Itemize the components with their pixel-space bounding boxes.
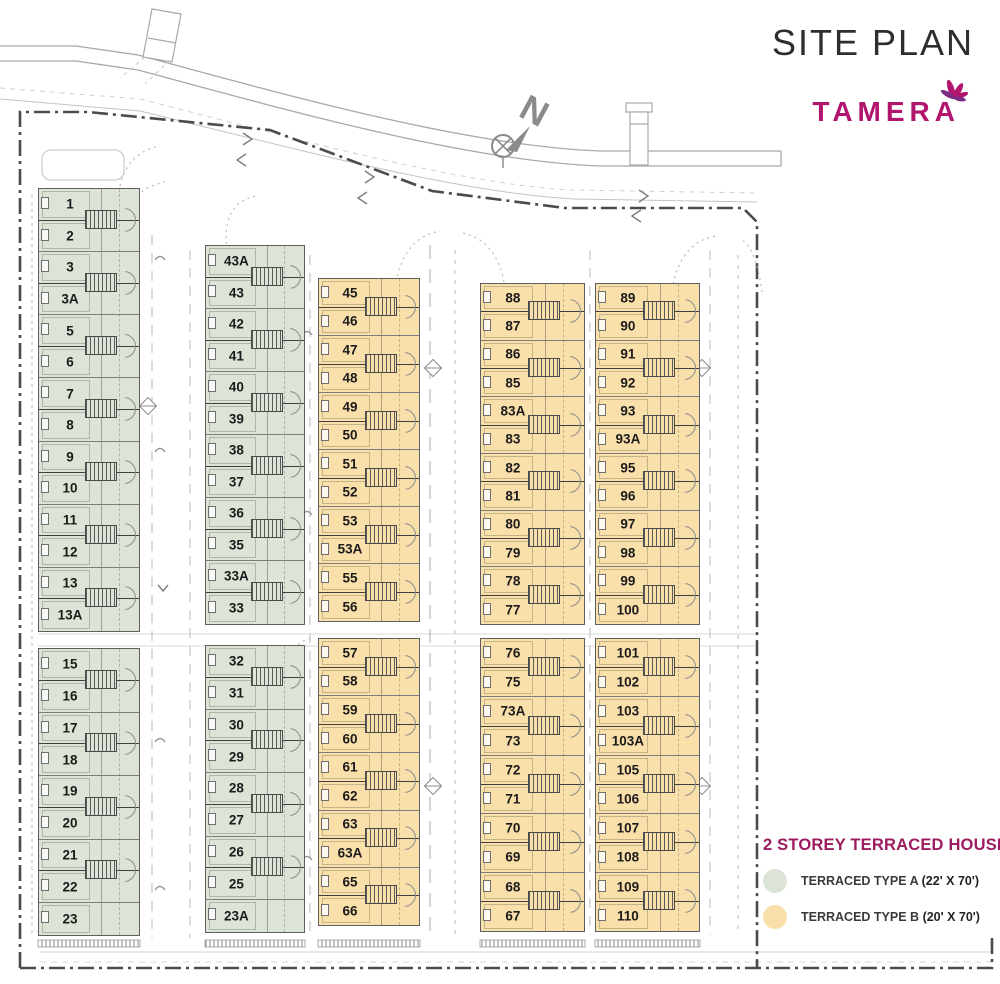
utility-meter-icon bbox=[208, 845, 216, 857]
utility-meter-icon bbox=[208, 686, 216, 698]
utility-meter-icon bbox=[321, 846, 329, 858]
utility-meter-icon bbox=[598, 851, 606, 863]
utility-meter-icon bbox=[41, 260, 49, 272]
utility-meter-icon bbox=[41, 576, 49, 588]
utility-meter-icon bbox=[321, 732, 329, 744]
unit-outline bbox=[42, 905, 90, 933]
type-a-swatch bbox=[763, 869, 787, 893]
lot-88: 88 bbox=[481, 284, 584, 312]
lot-7: 7 bbox=[39, 378, 139, 410]
unit-outline bbox=[484, 343, 533, 366]
utility-meter-icon bbox=[321, 600, 329, 612]
legend-item-label: TERRACED TYPE B bbox=[801, 910, 919, 924]
lot-block-col2-bottom: 323130292827262523A bbox=[205, 645, 305, 933]
unit-outline bbox=[599, 816, 648, 840]
lot-block-col3-top: 45464748495051525353A5556 bbox=[318, 278, 420, 622]
lot-101: 101 bbox=[596, 639, 699, 668]
site-plan-canvas: N 1233A567891011121313A15161718192021222… bbox=[0, 0, 1000, 984]
north-label: N bbox=[513, 86, 555, 134]
unit-outline bbox=[599, 699, 648, 723]
utility-meter-icon bbox=[483, 705, 491, 717]
staircase-icon bbox=[365, 525, 397, 544]
utility-meter-icon bbox=[598, 603, 606, 615]
utility-meter-icon bbox=[483, 433, 491, 445]
utility-meter-icon bbox=[41, 323, 49, 335]
lot-80: 80 bbox=[481, 511, 584, 539]
unit-outline bbox=[209, 437, 256, 464]
unit-outline bbox=[42, 538, 90, 565]
unit-outline bbox=[209, 648, 256, 675]
legend-item-label: TERRACED TYPE A bbox=[801, 874, 918, 888]
lot-33A: 33A bbox=[206, 561, 304, 593]
unit-outline bbox=[209, 870, 256, 897]
staircase-icon bbox=[365, 657, 397, 676]
unit-outline bbox=[599, 428, 648, 451]
unit-outline bbox=[42, 507, 90, 534]
unit-outline bbox=[42, 873, 90, 900]
utility-meter-icon bbox=[41, 229, 49, 241]
utility-meter-icon bbox=[208, 254, 216, 266]
unit-outline bbox=[209, 743, 256, 770]
lot-13: 13 bbox=[39, 568, 139, 600]
curb-outline bbox=[42, 150, 124, 180]
utility-meter-icon bbox=[41, 450, 49, 462]
staircase-icon bbox=[365, 771, 397, 790]
lot-86: 86 bbox=[481, 341, 584, 369]
unit-outline bbox=[484, 729, 533, 753]
unit-outline bbox=[322, 281, 370, 305]
unit-outline bbox=[484, 399, 533, 422]
staircase-icon bbox=[85, 336, 117, 355]
unit-outline bbox=[322, 670, 370, 694]
unit-outline bbox=[322, 813, 370, 837]
utility-meter-icon bbox=[208, 876, 216, 888]
staircase-icon bbox=[251, 730, 283, 749]
lot-105: 105 bbox=[596, 756, 699, 785]
type-b-swatch bbox=[763, 905, 787, 929]
utility-meter-icon bbox=[41, 752, 49, 764]
staircase-icon bbox=[85, 860, 117, 879]
unit-outline bbox=[484, 569, 533, 592]
lot-70: 70 bbox=[481, 814, 584, 843]
utility-meter-icon bbox=[598, 546, 606, 558]
staircase-icon bbox=[365, 297, 397, 316]
utility-meter-icon bbox=[483, 822, 491, 834]
utility-meter-icon bbox=[41, 292, 49, 304]
utility-meter-icon bbox=[321, 543, 329, 555]
staircase-icon bbox=[365, 714, 397, 733]
flower-icon bbox=[934, 74, 974, 114]
utility-meter-icon bbox=[598, 404, 606, 416]
unit-outline bbox=[209, 406, 256, 433]
staircase-icon bbox=[85, 273, 117, 292]
unit-outline bbox=[484, 904, 533, 929]
utility-meter-icon bbox=[483, 348, 491, 360]
utility-meter-icon bbox=[41, 608, 49, 620]
lot-23: 23 bbox=[39, 903, 139, 935]
unit-outline bbox=[599, 641, 648, 665]
unit-outline bbox=[42, 842, 90, 869]
utility-meter-icon bbox=[483, 646, 491, 658]
unit-outline bbox=[42, 746, 90, 773]
unit-outline bbox=[209, 500, 256, 527]
utility-meter-icon bbox=[483, 792, 491, 804]
unit-outline bbox=[209, 374, 256, 401]
utility-meter-icon bbox=[598, 433, 606, 445]
unit-outline bbox=[322, 898, 370, 923]
lot-47: 47 bbox=[319, 336, 419, 365]
unit-outline bbox=[599, 286, 648, 309]
utility-meter-icon bbox=[321, 904, 329, 916]
lot-83A: 83A bbox=[481, 397, 584, 425]
staircase-icon bbox=[528, 415, 560, 434]
unit-outline bbox=[209, 680, 256, 707]
unit-outline bbox=[599, 758, 648, 782]
unit-outline bbox=[484, 845, 533, 869]
lot-107: 107 bbox=[596, 814, 699, 843]
staircase-icon bbox=[251, 857, 283, 876]
staircase-icon bbox=[528, 832, 560, 851]
lot-43A: 43A bbox=[206, 246, 304, 278]
lot-55: 55 bbox=[319, 564, 419, 593]
lot-97: 97 bbox=[596, 511, 699, 539]
brand-logo: TAMERA bbox=[812, 96, 960, 128]
utility-meter-icon bbox=[321, 486, 329, 498]
utility-meter-icon bbox=[483, 404, 491, 416]
utility-meter-icon bbox=[598, 734, 606, 746]
lot-40: 40 bbox=[206, 372, 304, 404]
staircase-icon bbox=[85, 588, 117, 607]
unit-outline bbox=[42, 191, 90, 218]
utility-meter-icon bbox=[598, 676, 606, 688]
lot-15: 15 bbox=[39, 649, 139, 681]
utility-meter-icon bbox=[321, 571, 329, 583]
lot-21: 21 bbox=[39, 840, 139, 872]
staircase-icon bbox=[365, 582, 397, 601]
unit-outline bbox=[599, 314, 648, 337]
utility-meter-icon bbox=[483, 909, 491, 921]
utility-meter-icon bbox=[41, 657, 49, 669]
unit-outline bbox=[599, 569, 648, 592]
lot-49: 49 bbox=[319, 393, 419, 422]
unit-outline bbox=[599, 371, 648, 394]
unit-outline bbox=[42, 683, 90, 710]
utility-meter-icon bbox=[321, 400, 329, 412]
unit-outline bbox=[42, 317, 90, 344]
utility-meter-icon bbox=[208, 506, 216, 518]
staircase-icon bbox=[643, 415, 675, 434]
lot-38: 38 bbox=[206, 435, 304, 467]
lot-block-col2-top: 43A43424140393837363533A33 bbox=[205, 245, 305, 625]
utility-meter-icon bbox=[321, 514, 329, 526]
unit-outline bbox=[322, 698, 370, 722]
lot-32: 32 bbox=[206, 646, 304, 678]
unit-outline bbox=[322, 509, 370, 533]
unit-outline bbox=[42, 223, 90, 250]
utility-meter-icon bbox=[598, 909, 606, 921]
staircase-icon bbox=[643, 716, 675, 735]
page-title: SITE PLAN bbox=[772, 22, 974, 64]
utility-meter-icon bbox=[598, 646, 606, 658]
unit-outline bbox=[599, 729, 648, 753]
unit-outline bbox=[322, 395, 370, 419]
utility-meter-icon bbox=[598, 574, 606, 586]
staircase-icon bbox=[85, 733, 117, 752]
lot-block-col1-bottom: 151617181920212223 bbox=[38, 648, 140, 936]
unit-outline bbox=[599, 598, 648, 622]
utility-meter-icon bbox=[321, 703, 329, 715]
unit-outline bbox=[209, 902, 256, 930]
unit-outline bbox=[42, 254, 90, 281]
unit-outline bbox=[484, 484, 533, 507]
utility-meter-icon bbox=[598, 880, 606, 892]
lot-17: 17 bbox=[39, 713, 139, 745]
unit-outline bbox=[484, 541, 533, 564]
unit-outline bbox=[42, 286, 90, 313]
unit-outline bbox=[322, 338, 370, 362]
utility-meter-icon bbox=[598, 319, 606, 331]
lot-block-col4-bottom: 767573A73727170696867 bbox=[480, 638, 585, 932]
unit-outline bbox=[322, 538, 370, 562]
unit-outline bbox=[599, 541, 648, 564]
utility-meter-icon bbox=[483, 676, 491, 688]
legend: 2 STOREY TERRACED HOUSE TERRACED TYPE A … bbox=[763, 836, 995, 941]
staircase-icon bbox=[643, 585, 675, 604]
utility-meter-icon bbox=[483, 880, 491, 892]
lot-72: 72 bbox=[481, 756, 584, 785]
utility-meter-icon bbox=[41, 418, 49, 430]
lot-91: 91 bbox=[596, 341, 699, 369]
unit-outline bbox=[209, 469, 256, 496]
lot-19: 19 bbox=[39, 776, 139, 808]
unit-outline bbox=[42, 601, 90, 629]
staircase-icon bbox=[85, 462, 117, 481]
utility-meter-icon bbox=[321, 372, 329, 384]
unit-outline bbox=[322, 641, 370, 665]
lot-28: 28 bbox=[206, 773, 304, 805]
unit-outline bbox=[209, 532, 256, 559]
utility-meter-icon bbox=[321, 315, 329, 327]
staircase-icon bbox=[365, 411, 397, 430]
unit-outline bbox=[209, 563, 256, 590]
staircase-icon bbox=[251, 330, 283, 349]
unit-outline bbox=[322, 310, 370, 334]
staircase-icon bbox=[251, 393, 283, 412]
unit-outline bbox=[599, 904, 648, 929]
utility-meter-icon bbox=[483, 546, 491, 558]
lot-block-col5-bottom: 101102103103A105106107108109110 bbox=[595, 638, 700, 932]
utility-meter-icon bbox=[208, 474, 216, 486]
lot-57: 57 bbox=[319, 639, 419, 668]
staircase-icon bbox=[85, 399, 117, 418]
lot-93: 93 bbox=[596, 397, 699, 425]
utility-meter-icon bbox=[41, 197, 49, 209]
lot-82: 82 bbox=[481, 454, 584, 482]
staircase-icon bbox=[365, 828, 397, 847]
staircase-icon bbox=[251, 582, 283, 601]
lot-1: 1 bbox=[39, 189, 139, 221]
unit-outline bbox=[599, 399, 648, 422]
unit-outline bbox=[599, 343, 648, 366]
utility-meter-icon bbox=[41, 879, 49, 891]
legend-item-dimension: (20' X 70') bbox=[923, 910, 980, 924]
unit-outline bbox=[42, 475, 90, 502]
lot-5: 5 bbox=[39, 315, 139, 347]
utility-meter-icon bbox=[321, 818, 329, 830]
lot-23A: 23A bbox=[206, 900, 304, 932]
staircase-icon bbox=[528, 657, 560, 676]
unit-outline bbox=[42, 810, 90, 837]
utility-meter-icon bbox=[483, 489, 491, 501]
staircase-icon bbox=[85, 670, 117, 689]
utility-meter-icon bbox=[598, 461, 606, 473]
hatch-bands bbox=[38, 940, 700, 947]
unit-outline bbox=[599, 456, 648, 479]
unit-outline bbox=[484, 875, 533, 899]
lot-99: 99 bbox=[596, 567, 699, 595]
utility-meter-icon bbox=[598, 376, 606, 388]
utility-meter-icon bbox=[321, 429, 329, 441]
unit-outline bbox=[484, 456, 533, 479]
utility-meter-icon bbox=[208, 654, 216, 666]
unit-outline bbox=[599, 670, 648, 694]
staircase-icon bbox=[528, 471, 560, 490]
lot-103: 103 bbox=[596, 697, 699, 726]
lot-61: 61 bbox=[319, 753, 419, 782]
staircase-icon bbox=[251, 519, 283, 538]
unit-outline bbox=[484, 513, 533, 536]
unit-outline bbox=[42, 412, 90, 439]
legend-title: 2 STOREY TERRACED HOUSE bbox=[763, 836, 995, 855]
unit-outline bbox=[484, 641, 533, 665]
utility-meter-icon bbox=[41, 848, 49, 860]
lot-9: 9 bbox=[39, 442, 139, 474]
staircase-icon bbox=[643, 358, 675, 377]
utility-meter-icon bbox=[41, 784, 49, 796]
unit-outline bbox=[209, 595, 256, 623]
unit-outline bbox=[484, 758, 533, 782]
staircase-icon bbox=[365, 468, 397, 487]
lot-30: 30 bbox=[206, 710, 304, 742]
utility-meter-icon bbox=[321, 789, 329, 801]
unit-outline bbox=[322, 452, 370, 476]
unit-outline bbox=[322, 595, 370, 620]
legend-item-type-b: TERRACED TYPE B (20' X 70') bbox=[763, 905, 995, 929]
legend-item-dimension: (22' X 70') bbox=[922, 874, 979, 888]
utility-meter-icon bbox=[208, 285, 216, 297]
unit-outline bbox=[599, 513, 648, 536]
lot-73A: 73A bbox=[481, 697, 584, 726]
unit-outline bbox=[322, 367, 370, 391]
utility-meter-icon bbox=[598, 518, 606, 530]
staircase-icon bbox=[643, 528, 675, 547]
utility-meter-icon bbox=[483, 763, 491, 775]
unit-outline bbox=[42, 778, 90, 805]
utility-meter-icon bbox=[41, 481, 49, 493]
utility-meter-icon bbox=[321, 646, 329, 658]
utility-meter-icon bbox=[598, 763, 606, 775]
unit-outline bbox=[42, 651, 90, 678]
utility-meter-icon bbox=[208, 537, 216, 549]
unit-outline bbox=[42, 715, 90, 742]
utility-meter-icon bbox=[41, 911, 49, 923]
unit-outline bbox=[209, 311, 256, 338]
utility-meter-icon bbox=[321, 343, 329, 355]
staircase-icon bbox=[528, 585, 560, 604]
lot-11: 11 bbox=[39, 505, 139, 537]
unit-outline bbox=[322, 481, 370, 505]
unit-outline bbox=[484, 598, 533, 622]
utility-meter-icon bbox=[208, 718, 216, 730]
utility-meter-icon bbox=[41, 689, 49, 701]
unit-outline bbox=[322, 755, 370, 779]
unit-outline bbox=[599, 845, 648, 869]
unit-outline bbox=[209, 712, 256, 739]
utility-meter-icon bbox=[321, 761, 329, 773]
lot-block-col1-top: 1233A567891011121313A bbox=[38, 188, 140, 632]
staircase-icon bbox=[643, 657, 675, 676]
unit-outline bbox=[599, 787, 648, 811]
unit-outline bbox=[209, 807, 256, 834]
lot-block-col4-top: 8887868583A83828180797877 bbox=[480, 283, 585, 625]
unit-outline bbox=[322, 566, 370, 590]
unit-outline bbox=[209, 343, 256, 370]
utility-meter-icon bbox=[598, 822, 606, 834]
lot-89: 89 bbox=[596, 284, 699, 312]
lot-3: 3 bbox=[39, 252, 139, 284]
lot-78: 78 bbox=[481, 567, 584, 595]
unit-outline bbox=[322, 841, 370, 865]
lot-51: 51 bbox=[319, 450, 419, 479]
staircase-icon bbox=[528, 716, 560, 735]
unit-outline bbox=[42, 570, 90, 597]
staircase-icon bbox=[365, 885, 397, 904]
unit-outline bbox=[209, 839, 256, 866]
unit-outline bbox=[484, 670, 533, 694]
unit-outline bbox=[322, 784, 370, 808]
utility-meter-icon bbox=[483, 603, 491, 615]
staircase-icon bbox=[85, 525, 117, 544]
utility-meter-icon bbox=[321, 286, 329, 298]
staircase-icon bbox=[251, 456, 283, 475]
unit-outline bbox=[484, 371, 533, 394]
utility-meter-icon bbox=[41, 721, 49, 733]
staircase-icon bbox=[251, 267, 283, 286]
staircase-icon bbox=[528, 891, 560, 910]
unit-outline bbox=[42, 444, 90, 471]
utility-meter-icon bbox=[321, 675, 329, 687]
unit-outline bbox=[209, 248, 256, 275]
staircase-icon bbox=[365, 354, 397, 373]
utility-meter-icon bbox=[483, 734, 491, 746]
lot-block-col5-top: 899091929393A9596979899100 bbox=[595, 283, 700, 625]
utility-meter-icon bbox=[483, 851, 491, 863]
lot-26: 26 bbox=[206, 837, 304, 869]
unit-outline bbox=[209, 280, 256, 307]
utility-meter-icon bbox=[208, 380, 216, 392]
lot-65: 65 bbox=[319, 868, 419, 897]
unit-outline bbox=[42, 380, 90, 407]
utility-meter-icon bbox=[208, 813, 216, 825]
unit-outline bbox=[599, 875, 648, 899]
lot-42: 42 bbox=[206, 309, 304, 341]
utility-meter-icon bbox=[208, 601, 216, 613]
utility-meter-icon bbox=[598, 291, 606, 303]
staircase-icon bbox=[251, 667, 283, 686]
utility-meter-icon bbox=[483, 574, 491, 586]
staircase-icon bbox=[85, 797, 117, 816]
utility-meter-icon bbox=[483, 518, 491, 530]
